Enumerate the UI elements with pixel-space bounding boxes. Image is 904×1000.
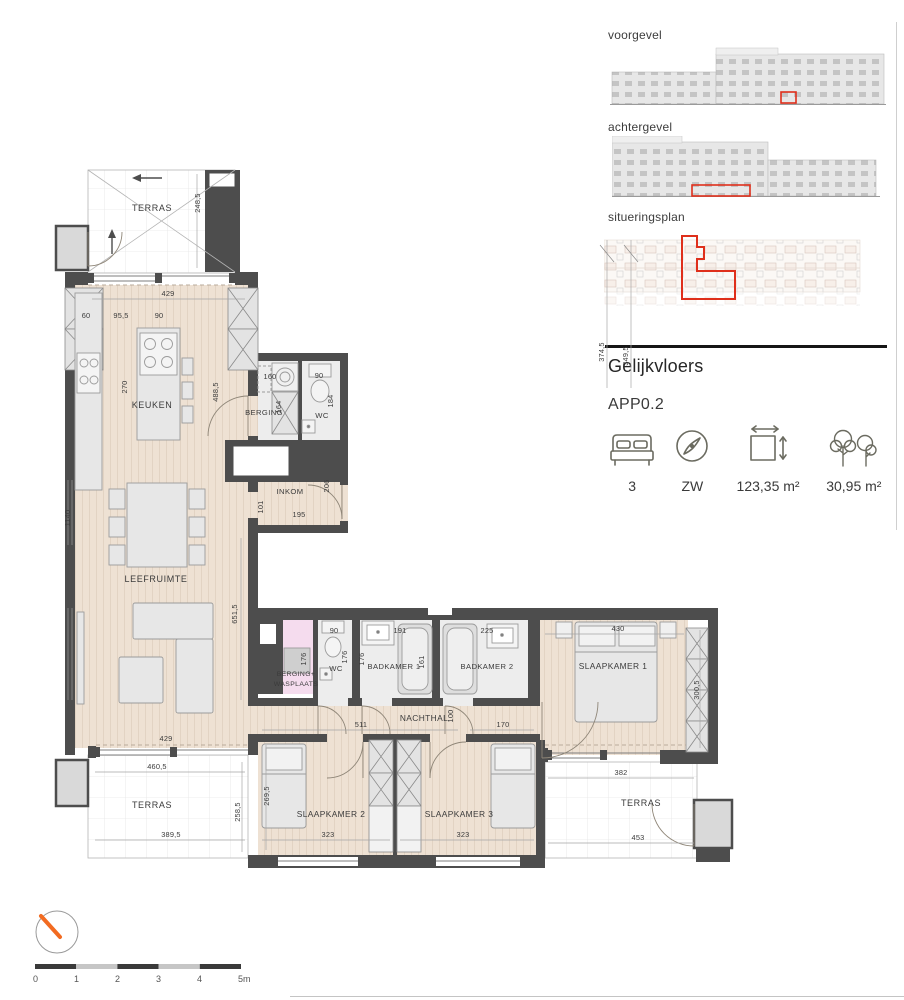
room-label-leefruimte: LEEFRUIMTE	[124, 574, 187, 584]
dim-terras-bl-w2: 389,5	[161, 830, 181, 839]
dim-wc1-h: 184	[326, 395, 335, 408]
dim-berging-col: 164	[274, 401, 283, 414]
dim-slk3-w: 323	[457, 830, 470, 839]
situeringsplan-label: situeringsplan	[608, 210, 685, 224]
floor-title: Gelijkvloers	[608, 356, 703, 377]
apartment-id: APP0.2	[608, 396, 664, 414]
stat-outdoor: 30,95 m²	[814, 424, 894, 494]
dim-counter-w: 95,5	[113, 311, 128, 320]
scale-tick-3: 3	[156, 974, 161, 984]
dim-badkamer1-h: 176	[357, 653, 366, 666]
room-label-berging-wasplaats-2: WASPLAATS	[274, 681, 318, 688]
plan-linework	[88, 170, 686, 745]
dim-terras-br-w1: 382	[615, 768, 628, 777]
dim-slk2-h: 269,5	[262, 786, 271, 806]
dim-badkamer2-w: 225	[481, 626, 494, 635]
bedrooms-value: 3	[628, 478, 636, 494]
windows	[68, 273, 660, 861]
dim-inkom-h: 206	[322, 480, 331, 493]
info-panel: voorgevel achtergevel situeringsplan	[600, 24, 900, 544]
dim-living-h: 651,5	[230, 604, 239, 624]
dim-nachthal-h: 100	[446, 710, 455, 723]
dim-wasplaats-h: 176	[299, 653, 308, 666]
room-labels: TERRAS KEUKEN LEEFRUIMTE BERGING WC INKO…	[124, 203, 661, 819]
dim-slk1-w: 430	[612, 624, 625, 633]
dim-terras-bl-h: 258,5	[233, 802, 242, 822]
dim-keuken-h: 488,5	[211, 382, 220, 402]
page-border-right	[896, 22, 897, 530]
room-label-slaapkamer3: SLAAPKAMER 3	[425, 809, 494, 819]
dim-terras-top-h: 248,5	[193, 193, 202, 213]
dim-berging-w: 160	[264, 372, 277, 381]
compass-icon	[670, 424, 714, 468]
stat-orientation: ZW	[662, 424, 722, 494]
dim-terras-bl-w1: 460,5	[147, 762, 167, 771]
stat-bedrooms: 3	[602, 430, 662, 494]
room-label-keuken: KEUKEN	[132, 400, 173, 410]
dim-keuken-d: 270	[120, 381, 129, 394]
scale-tick-0: 0	[33, 974, 38, 984]
dim-inkom-a: 101	[256, 501, 265, 514]
voorgevel-label: voorgevel	[608, 28, 662, 42]
room-label-inkom: INKOM	[277, 487, 304, 496]
north-arrow	[36, 911, 78, 953]
dim-wc2-h: 176	[340, 651, 349, 664]
dim-bad1-tub: 161	[417, 656, 426, 669]
dim-living-len: 1140	[63, 510, 72, 527]
room-label-wc1: WC	[315, 411, 329, 420]
dim-nachthal-w: 511	[355, 720, 367, 729]
area-icon	[745, 424, 791, 468]
dim-island-w: 90	[155, 311, 164, 320]
room-label-terras-top: TERRAS	[132, 203, 172, 213]
situeringsplan-map	[604, 228, 866, 324]
dim-wc2-w: 90	[330, 626, 339, 635]
page-border-bottom	[290, 996, 904, 997]
scale-tick-1: 1	[74, 974, 79, 984]
achtergevel-label: achtergevel	[608, 120, 672, 134]
area-value: 123,35 m²	[737, 478, 800, 494]
room-label-badkamer1: BADKAMER 1	[368, 662, 421, 671]
dim-terras-br-w2: 453	[632, 833, 645, 842]
outdoor-value: 30,95 m²	[826, 478, 881, 494]
room-label-badkamer2: BADKAMER 2	[461, 662, 514, 671]
orientation-value: ZW	[681, 478, 703, 494]
dim-slk2-w: 323	[322, 830, 335, 839]
stats-row: 3 ZW 123,35 m² 30,95	[602, 424, 894, 494]
room-label-slaapkamer2: SLAAPKAMER 2	[297, 809, 366, 819]
furniture	[75, 293, 676, 828]
scale-tick-4: 4	[197, 974, 202, 984]
dim-badkamer1-w: 191	[394, 626, 407, 635]
room-label-terras-bl: TERRAS	[132, 800, 172, 810]
voorgevel-elevation	[610, 46, 886, 110]
stat-area: 123,35 m²	[722, 424, 813, 494]
scale-tick-5: 5m	[238, 974, 251, 984]
room-label-terras-br: TERRAS	[621, 798, 661, 808]
achtergevel-elevation	[612, 136, 880, 204]
room-label-berging-wasplaats-1: BERGING+	[277, 671, 316, 678]
scale-tick-2: 2	[115, 974, 120, 984]
dim-living-w: 429	[160, 734, 173, 743]
room-label-wc2: WC	[329, 664, 343, 673]
divider-rule	[605, 345, 887, 348]
room-label-berging: BERGING	[245, 408, 283, 417]
bed-icon	[609, 430, 655, 468]
room-label-nachthal: NACHTHAL	[400, 713, 448, 723]
room-label-slaapkamer1: SLAAPKAMER 1	[579, 661, 648, 671]
dim-nachthal-w2: 170	[497, 720, 510, 729]
dim-col-w: 60	[82, 311, 91, 320]
dim-wc1-w: 90	[315, 371, 324, 380]
scale-bar: 0 1 2 3 4 5m	[33, 964, 251, 984]
dim-keuken-w: 429	[162, 289, 175, 298]
dim-slk1-h: 300,5	[692, 680, 701, 700]
trees-icon	[828, 424, 880, 468]
dim-inkom-w: 195	[293, 510, 306, 519]
wall-openings	[210, 174, 520, 866]
